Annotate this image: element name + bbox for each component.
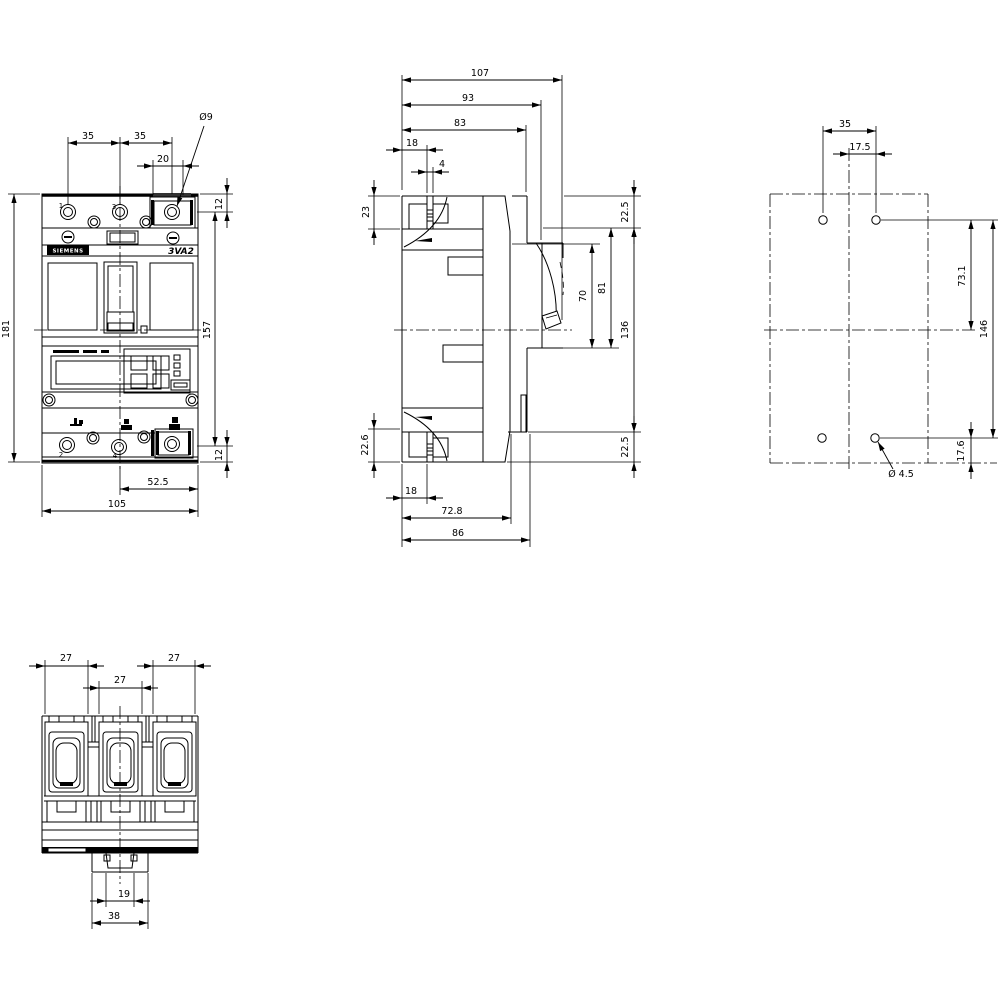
dim-front-pitch-a: 35 bbox=[82, 131, 94, 142]
terminal-number-1: 1 bbox=[59, 202, 63, 210]
model-label: 3VA2 bbox=[168, 247, 194, 257]
terminal-number-4: 4 bbox=[113, 452, 118, 460]
dim-bottom-27a: 27 bbox=[60, 653, 72, 664]
dim-front-half-width: 52.5 bbox=[147, 477, 168, 488]
siemens-logo: SIEMENS bbox=[52, 249, 83, 255]
dim-side-4: 4 bbox=[439, 159, 445, 170]
dim-side-22-6: 22.6 bbox=[360, 434, 371, 455]
mounting-hole-top-right bbox=[872, 216, 880, 224]
dim-side-22-5-top: 22.5 bbox=[620, 201, 631, 222]
accessory-symbol-1 bbox=[70, 418, 83, 426]
accessory-symbol-3 bbox=[169, 417, 180, 430]
dim-front-hole-dia: Ø9 bbox=[199, 112, 213, 123]
drawing-canvas: SIEMENS 3VA2 1 3 2 4 35 35 20 Ø9 12 157 … bbox=[0, 0, 1000, 1000]
terminal-number-2: 2 bbox=[59, 451, 63, 459]
dim-front-offset-bottom: 12 bbox=[214, 449, 225, 461]
dim-mount-pitch-y: 146 bbox=[979, 320, 990, 338]
terminal-pocket-3 bbox=[153, 716, 196, 822]
dim-front-offset-top: 12 bbox=[214, 198, 225, 210]
dim-side-70: 70 bbox=[578, 290, 589, 302]
front-view: SIEMENS 3VA2 1 3 2 4 35 35 20 Ø9 12 157 … bbox=[1, 112, 225, 510]
dim-side-18-top: 18 bbox=[406, 138, 418, 149]
dim-bottom-27b: 27 bbox=[114, 675, 126, 686]
dim-side-93: 93 bbox=[462, 93, 474, 104]
dim-side-18-bottom: 18 bbox=[405, 486, 417, 497]
dim-side-22-5-bottom: 22.5 bbox=[620, 436, 631, 457]
bottom-view: 27 27 27 19 38 bbox=[42, 653, 198, 922]
dim-mount-pitch-x: 35 bbox=[839, 119, 851, 130]
dim-mount-half-x: 17.5 bbox=[849, 142, 870, 153]
dim-side-136: 136 bbox=[620, 321, 631, 339]
terminal-number-3: 3 bbox=[112, 203, 116, 211]
dim-front-span: 157 bbox=[202, 321, 213, 339]
front-view-geometry bbox=[34, 186, 206, 472]
dim-front-clamp-width: 20 bbox=[157, 154, 169, 165]
dim-bottom-19: 19 bbox=[118, 889, 130, 900]
dim-side-83: 83 bbox=[454, 118, 466, 129]
dim-side-72-8: 72.8 bbox=[441, 506, 462, 517]
dim-side-86: 86 bbox=[452, 528, 464, 539]
dim-side-81: 81 bbox=[597, 282, 608, 294]
side-view-geometry bbox=[394, 196, 572, 462]
mounting-pattern-view: 35 17.5 73.1 146 17.6 Ø 4.5 bbox=[764, 119, 997, 480]
dim-front-height: 181 bbox=[1, 320, 12, 338]
bottom-view-geometry bbox=[42, 706, 198, 884]
dim-mount-73-1: 73.1 bbox=[957, 265, 968, 286]
technical-drawing: SIEMENS 3VA2 1 3 2 4 35 35 20 Ø9 12 157 … bbox=[0, 0, 1000, 1000]
accessory-symbol-2 bbox=[121, 419, 132, 430]
dim-front-pitch-b: 35 bbox=[134, 131, 146, 142]
mounting-view-geometry bbox=[764, 148, 997, 472]
terminal-pocket-2 bbox=[99, 716, 142, 822]
terminal-pocket-1 bbox=[45, 716, 88, 822]
dim-mount-17-6: 17.6 bbox=[956, 440, 967, 461]
mounting-hole-top-left bbox=[819, 216, 827, 224]
dim-mount-hole-dia: Ø 4.5 bbox=[888, 469, 914, 480]
dim-bottom-27c: 27 bbox=[168, 653, 180, 664]
dim-side-23: 23 bbox=[361, 206, 372, 218]
dim-side-107: 107 bbox=[471, 68, 489, 79]
dim-bottom-38: 38 bbox=[108, 911, 120, 922]
dim-front-width: 105 bbox=[108, 499, 126, 510]
mounting-hole-bottom-left bbox=[818, 434, 826, 442]
side-view: 107 93 83 18 4 23 22.5 81 70 136 22.5 22… bbox=[360, 68, 631, 539]
mounting-hole-bottom-right bbox=[871, 434, 879, 442]
